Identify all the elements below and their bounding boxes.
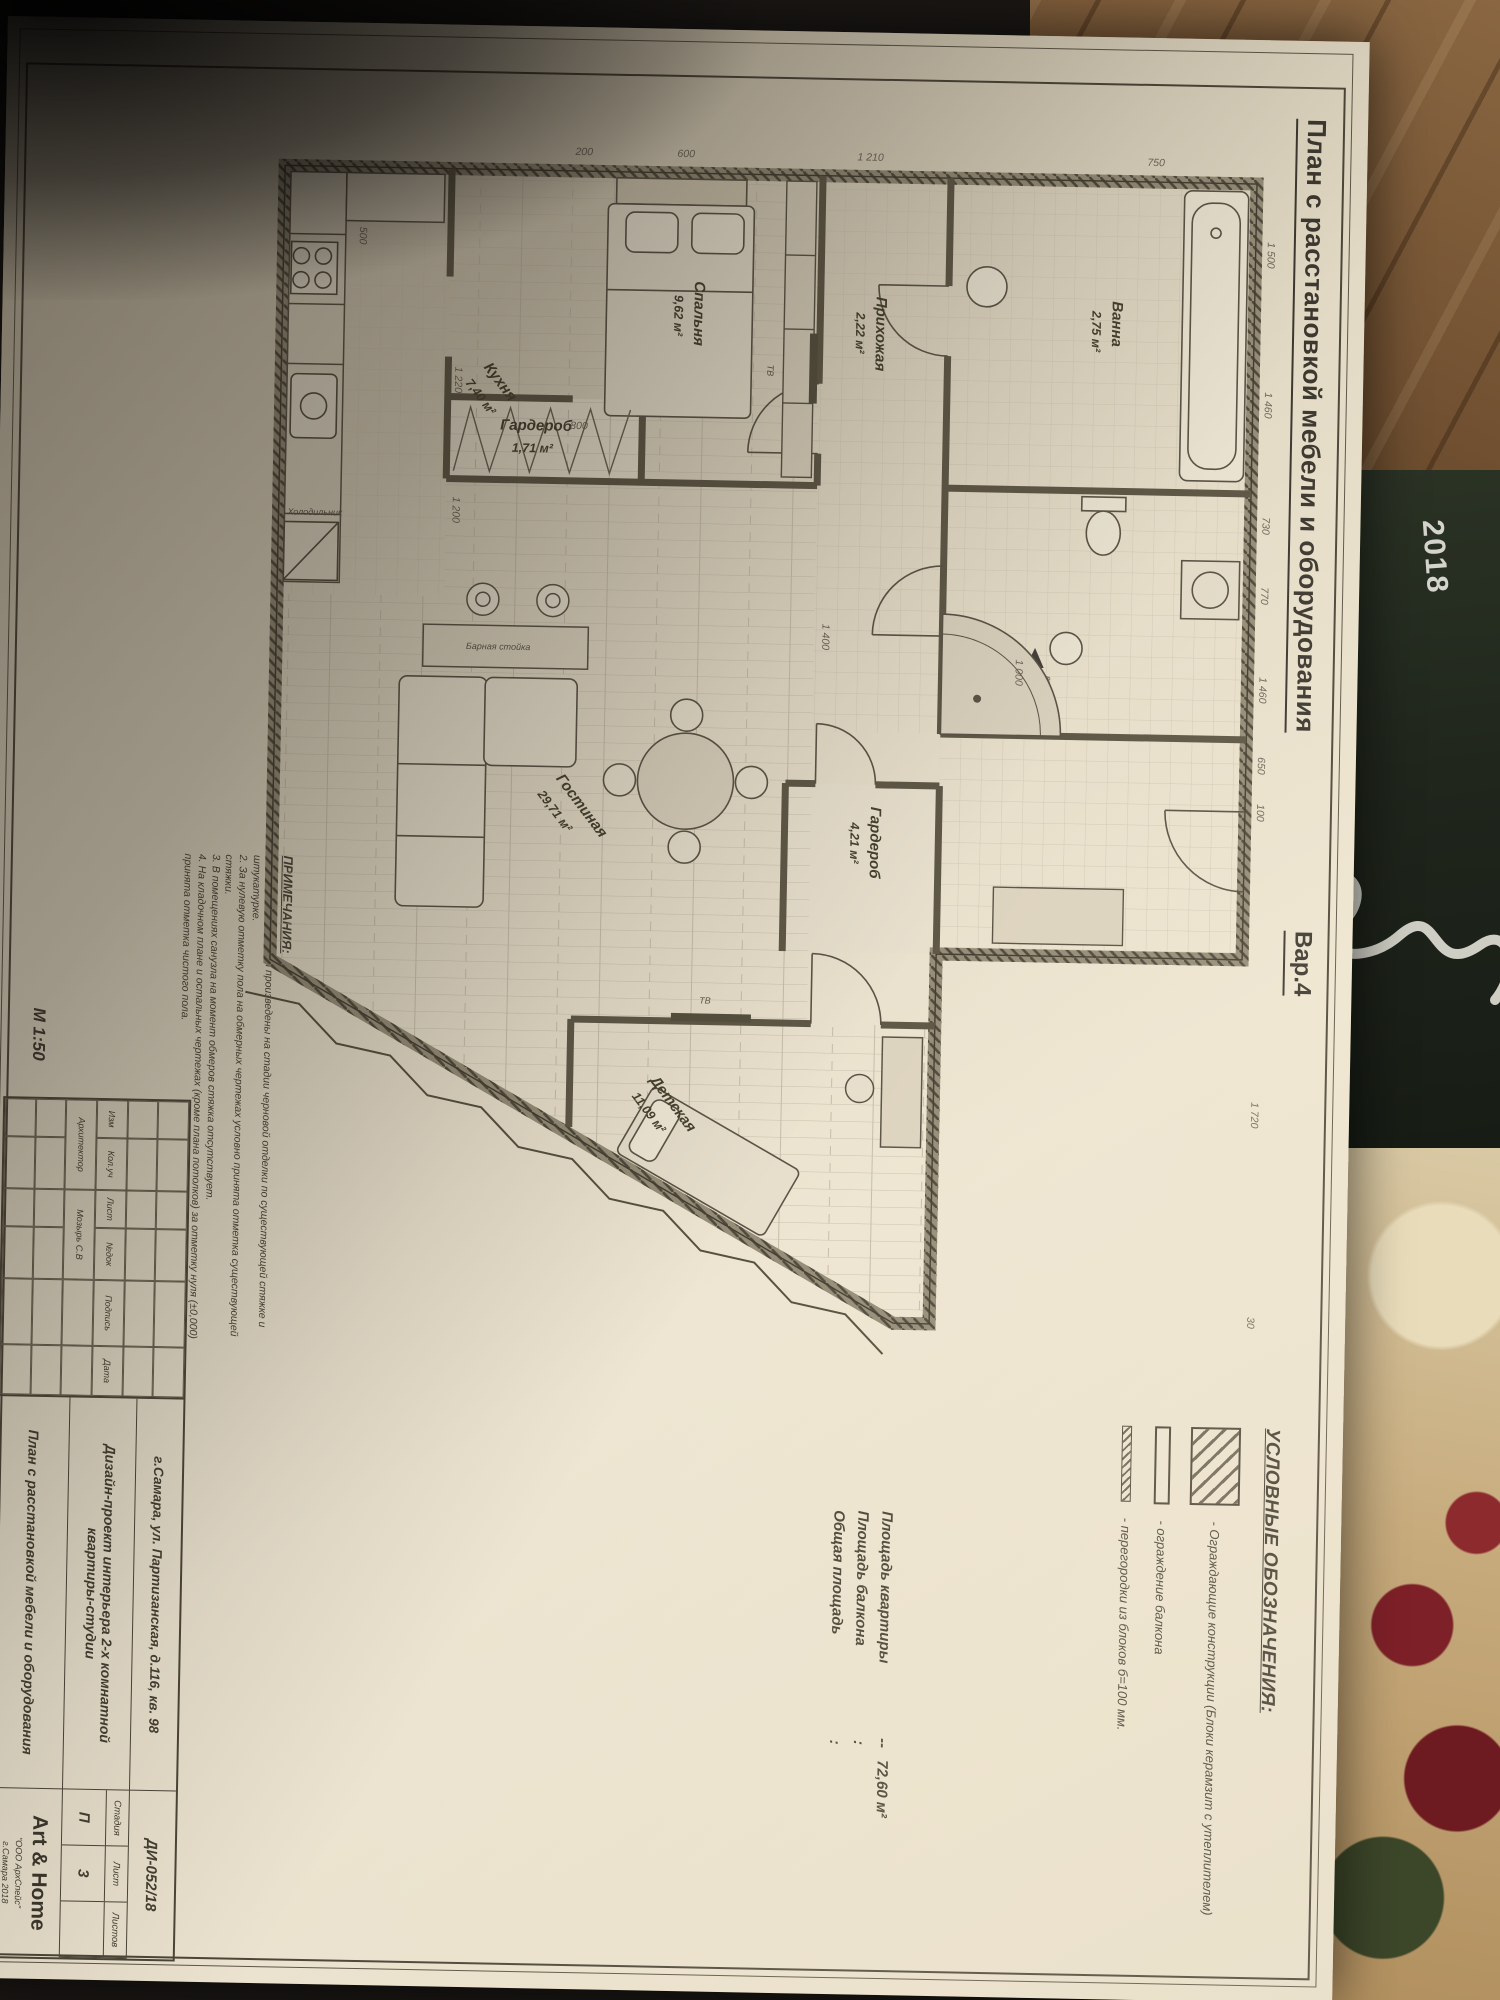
drawing-name: План с расстановкой мебели и оборудовани… [0,1396,69,1789]
partition-symbol [1120,1426,1131,1502]
area-row: Площадь балкона : [846,1511,872,1961]
title-block: Изм Кол.уч Лист №док Подпись Дата Архите… [0,1096,191,1961]
svg-text:1 220: 1 220 [452,367,465,394]
svg-text:4,21 м²: 4,21 м² [847,821,862,864]
svg-text:1,71 м²: 1,71 м² [512,441,554,456]
variant-label: Вар.4 [1282,931,1316,997]
hall-cabinet [992,887,1123,945]
washing-machine [1181,561,1240,620]
svg-text:770: 770 [1258,587,1270,605]
project-title: Дизайн-проект интерьера 2-х комнатной кв… [63,1397,137,1790]
legend-item-walls: - Ограждающие конструкции (Блоки керамзи… [1181,1427,1241,1964]
bathtub [1179,191,1249,482]
svg-text:650: 650 [1255,757,1267,775]
room-label-hall: Прихожая [871,297,889,372]
tv-bedroom [809,333,818,403]
sheets-total [60,1901,104,1958]
plan-sheet: План с расстановкой мебели и оборудовани… [0,16,1370,2000]
area-row: Общая площадь : [822,1510,848,1960]
svg-text:1 460: 1 460 [1262,392,1275,419]
kitchen-sink [290,374,337,439]
svg-text:1 500: 1 500 [1264,242,1277,269]
role-cell: Архитектор [65,1099,97,1190]
stamp-main: г.Самара, ул. Партизанская, д.116, кв. 9… [0,1396,183,1959]
fridge [283,521,338,580]
company-cell: Art & Home "ООО АрхСпейс" г.Самара 2018 [0,1788,62,1957]
photo-scene: 2018 План с расстановкой мебели и оборуд… [0,0,1500,2000]
stage-sheet-table: Стадия Лист Листов П 3 [60,1789,129,1958]
svg-text:2,75 м²: 2,75 м² [1089,310,1104,353]
balcony-rail-symbol [1154,1426,1171,1504]
room-label-bath: Ванна [1108,301,1126,347]
svg-text:Холодильник: Холодильник [286,506,343,517]
svg-text:1 400: 1 400 [819,624,832,651]
svg-text:9,62 м²: 9,62 м² [671,295,686,337]
company-logo-text: Art & Home [25,1815,51,1931]
bedroom-wardrobe [781,181,817,478]
svg-text:1 460: 1 460 [1256,677,1269,704]
revision-grid: Изм Кол.уч Лист №док Подпись Дата Архите… [0,1098,189,1399]
document-number: ДИ-052/18 [127,1791,176,1960]
svg-text:ТВ: ТВ [765,365,775,377]
svg-text:730: 730 [1259,517,1271,535]
svg-text:2,22 м²: 2,22 м² [853,311,868,354]
svg-text:1 210: 1 210 [857,151,884,164]
svg-text:Барная стойка: Барная стойка [466,641,530,652]
legend-item-balcony: - ограждение балкона [1145,1426,1172,1962]
tv-living [671,1013,751,1023]
svg-text:750: 750 [1147,157,1165,169]
stage-value: П [62,1789,106,1846]
legend-item-partitions: - перегородки из блоков б=100 мм. [1108,1426,1135,1962]
room-label-wardrobe2: Гардероб [866,807,884,880]
bath-sink [967,266,1008,307]
project-address: г.Самара, ул. Партизанская, д.116, кв. 9… [130,1399,184,1792]
wall-hatch-symbol [1190,1427,1241,1506]
legend: УСЛОВНЫЕ ОБОЗНАЧЕНИЯ: - Ограждающие конс… [1088,1425,1283,1964]
scale-label: М 1:50 [28,1008,49,1061]
svg-text:800: 800 [570,420,588,432]
room-label-wardrobe1: Гардероб [500,417,573,435]
svg-text:1 000: 1 000 [1012,659,1025,686]
svg-text:100: 100 [1254,804,1266,822]
role-name-cell: Мозырь С.В [63,1189,95,1280]
wc-sink [1050,632,1083,665]
drawing-content: План с расстановкой мебели и оборудовани… [0,22,1360,1993]
svg-text:1 200: 1 200 [449,497,462,524]
magazine-year-text: 2018 [1415,519,1454,596]
shadow-vignette [0,0,760,300]
svg-text:1 720: 1 720 [1248,1102,1261,1129]
sheet-number: 3 [61,1845,105,1902]
svg-text:ТВ: ТВ [699,995,711,1005]
svg-text:30: 30 [1244,1317,1256,1329]
area-summary: Площадь квартиры -- 72,60 м² Площадь бал… [815,1510,896,1961]
